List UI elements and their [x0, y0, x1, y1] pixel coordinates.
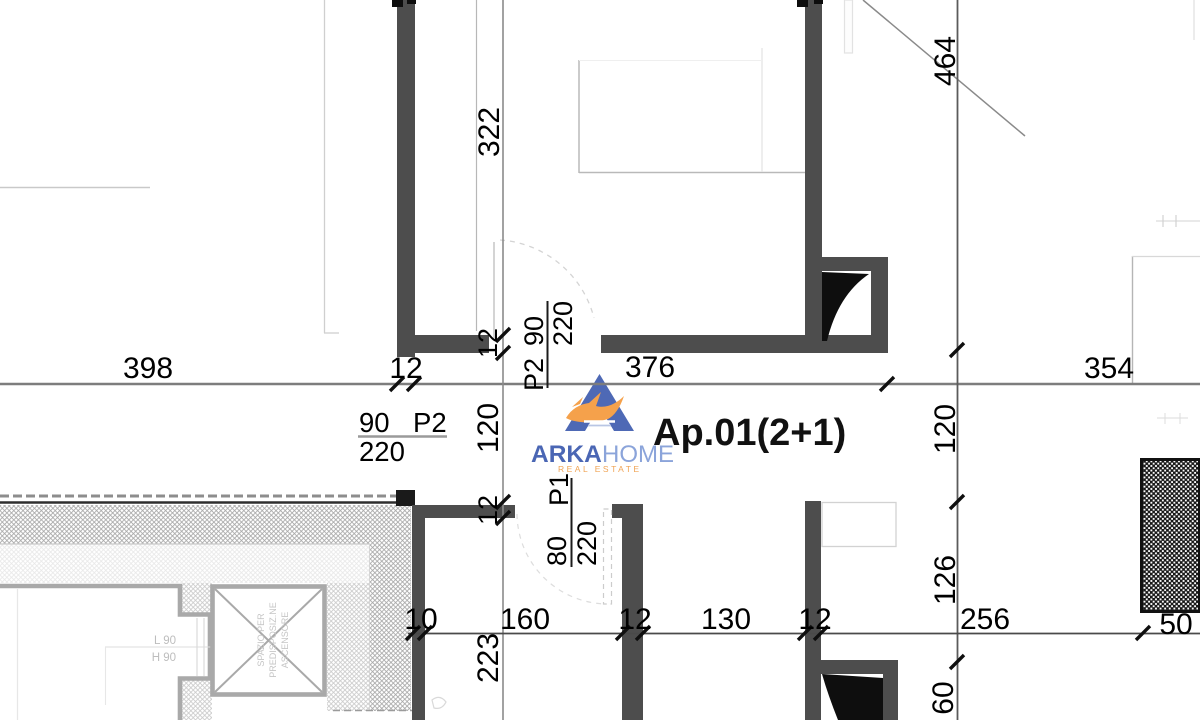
svg-text:SPAZIO PER: SPAZIO PER [256, 613, 266, 667]
svg-text:PREDISPOSIZ.NE: PREDISPOSIZ.NE [268, 602, 278, 678]
svg-text:12: 12 [618, 603, 651, 636]
svg-text:120: 120 [472, 403, 505, 453]
svg-text:12: 12 [798, 603, 831, 636]
svg-text:464: 464 [929, 36, 962, 86]
svg-text:10: 10 [404, 603, 437, 636]
svg-text:L 90: L 90 [154, 635, 176, 647]
svg-text:80: 80 [542, 536, 572, 566]
svg-text:12: 12 [389, 352, 422, 385]
svg-text:90: 90 [519, 316, 549, 346]
svg-text:220: 220 [548, 301, 578, 346]
svg-text:322: 322 [473, 107, 506, 157]
svg-text:220: 220 [572, 521, 602, 566]
svg-text:60: 60 [927, 681, 960, 714]
svg-text:120: 120 [929, 404, 962, 454]
svg-text:126: 126 [929, 555, 962, 605]
svg-text:Ap.01(2+1): Ap.01(2+1) [653, 412, 846, 454]
svg-text:12: 12 [473, 328, 503, 358]
svg-text:130: 130 [701, 603, 751, 636]
svg-text:376: 376 [625, 351, 675, 384]
svg-text:90: 90 [359, 407, 390, 438]
svg-text:P2: P2 [519, 358, 549, 391]
svg-text:160: 160 [500, 603, 550, 636]
svg-text:354: 354 [1084, 352, 1134, 385]
svg-text:H 90: H 90 [152, 652, 176, 664]
svg-text:P2: P2 [413, 407, 447, 438]
svg-text:398: 398 [123, 352, 173, 385]
svg-text:12: 12 [473, 495, 503, 525]
svg-text:223: 223 [472, 633, 505, 683]
svg-text:P1: P1 [544, 473, 574, 506]
svg-text:220: 220 [359, 436, 405, 467]
svg-text:ASCENSORE: ASCENSORE [280, 612, 290, 669]
svg-text:REAL ESTATE: REAL ESTATE [558, 464, 642, 474]
svg-text:256: 256 [960, 603, 1010, 636]
